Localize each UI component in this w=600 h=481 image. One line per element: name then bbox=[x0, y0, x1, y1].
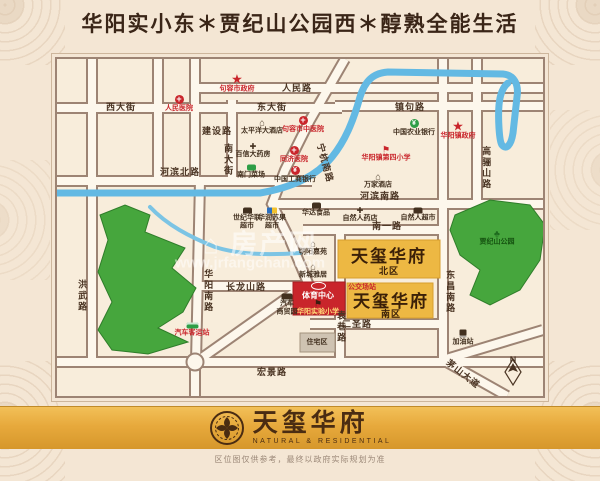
residential-block bbox=[300, 333, 335, 352]
jiajishan-park bbox=[450, 200, 545, 305]
estate-south-block bbox=[347, 283, 433, 318]
disclaimer-text: 区位图仅供参考，最终以政府实际规划为准 bbox=[0, 454, 600, 465]
brand-name: 天玺华府 bbox=[253, 411, 392, 436]
brand-banner: 天玺华府 NATURAL & RESIDENTIAL bbox=[0, 406, 600, 449]
roundabout bbox=[187, 354, 204, 371]
location-map: 人民路东大街西大街建设路南大街河滨北路宁杭南路镇句路河滨南路南一路高骊山路长龙山… bbox=[55, 57, 545, 398]
corner-ornament bbox=[0, 160, 50, 280]
corner-ornament bbox=[550, 110, 600, 230]
brand-medallion-icon bbox=[209, 410, 245, 446]
sports-center-block bbox=[293, 282, 345, 315]
page-title: 华阳实小东＊贾纪山公园西＊醇熟全能生活 bbox=[0, 8, 600, 38]
estate-north-block bbox=[338, 240, 440, 278]
brand-tagline: NATURAL & RESIDENTIAL bbox=[253, 438, 392, 445]
west-park bbox=[98, 205, 196, 354]
map-graphics bbox=[55, 57, 545, 398]
